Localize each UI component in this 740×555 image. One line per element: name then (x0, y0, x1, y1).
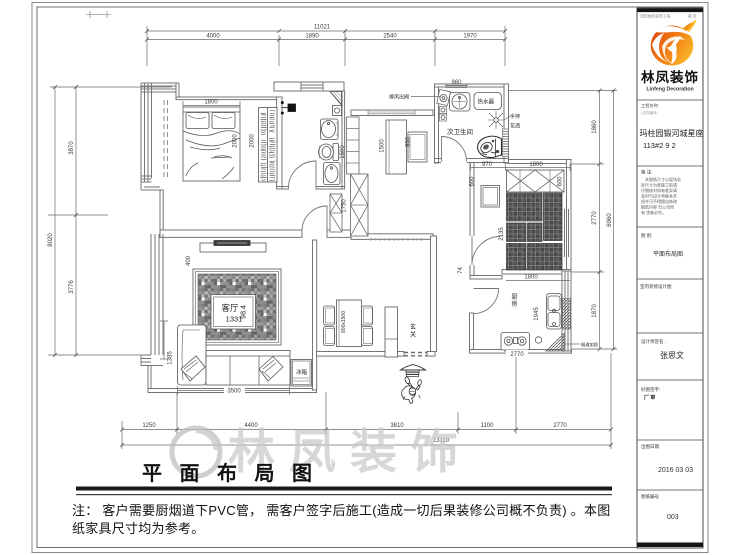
svg-text:客厅: 客厅 (221, 303, 239, 313)
svg-text:1800: 1800 (529, 162, 543, 168)
svg-text:1385: 1385 (168, 351, 174, 365)
svg-text:平面布局图: 平面布局图 (142, 461, 330, 485)
svg-text:烟道加固: 烟道加固 (581, 341, 598, 348)
svg-text:2770: 2770 (592, 211, 598, 225)
svg-text:注： 客户需要厨烟道下PVC管， 需客户签字后施工(造成一切: 注： 客户需要厨烟道下PVC管， 需客户签字后施工(造成一切后果装修公司概不负责… (72, 503, 610, 518)
svg-text:张思文: 张思文 (660, 350, 684, 360)
svg-text:本图纸尺寸以现场实: 本图纸尺寸以现场实 (645, 176, 681, 182)
svg-text:冰箱: 冰箱 (296, 368, 308, 376)
svg-text:3776: 3776 (69, 280, 75, 294)
svg-text:室内装修设计图: 室内装修设计图 (640, 283, 672, 290)
svg-text:400: 400 (186, 255, 192, 266)
svg-text:次卫生间: 次卫生间 (447, 127, 473, 136)
svg-text:出图日期: 出图日期 (641, 443, 659, 450)
svg-text:平面布局图: 平面布局图 (653, 250, 683, 258)
svg-text:2135: 2135 (499, 227, 505, 241)
svg-text:1860: 1860 (592, 120, 598, 134)
svg-text:图纸编号: 图纸编号 (641, 493, 659, 500)
svg-text:11021: 11021 (314, 25, 331, 31)
svg-text:玛柱园锻河城星座: 玛柱园锻河城星座 (640, 128, 704, 138)
svg-text:8020: 8020 (48, 233, 54, 247)
svg-text:2000: 2000 (233, 134, 239, 148)
svg-text:有 违者必究。: 有 违者必究。 (641, 209, 666, 215)
svg-text:800x1500: 800x1500 (341, 311, 347, 333)
svg-text:纸家具尺寸均为参考。: 纸家具尺寸均为参考。 (72, 521, 205, 536)
svg-text:1250: 1250 (142, 423, 156, 429)
svg-text:林凤装饰: 林凤装饰 (641, 69, 699, 85)
svg-text:113#2 9 2: 113#2 9 2 (643, 141, 676, 150)
svg-text:关: 关 (410, 331, 416, 339)
svg-text:Linfeng Decoration: Linfeng Decoration (646, 87, 693, 93)
svg-text:1800: 1800 (524, 275, 538, 281)
svg-text:1800: 1800 (204, 100, 218, 106)
svg-text:6960: 6960 (607, 213, 613, 227)
svg-text:2770: 2770 (510, 352, 524, 358)
svg-text:设计师签名 :: 设计师签名 : (641, 338, 666, 345)
svg-text:600: 600 (558, 176, 564, 187)
svg-text:4000: 4000 (206, 34, 220, 40)
svg-text:手持: 手持 (510, 113, 520, 120)
svg-text:花洒: 花洒 (510, 123, 520, 130)
svg-text:厨: 厨 (511, 294, 517, 301)
svg-text:1750: 1750 (342, 199, 348, 213)
svg-text:3500: 3500 (227, 389, 241, 395)
svg-text:图纸内容 归公司所: 图纸内容 归公司所 (641, 204, 674, 210)
svg-text:1500: 1500 (340, 145, 346, 159)
svg-text:热水器: 热水器 (478, 98, 495, 106)
svg-text:1945: 1945 (534, 307, 540, 321)
svg-text:第 页: 第 页 (688, 14, 697, 19)
svg-text:仔细核对如有差异请: 仔细核对如有差异请 (641, 187, 677, 193)
svg-text:图 别:: 图 别: (641, 232, 653, 239)
svg-text:际尺寸为准施工前请: 际尺寸为准施工前请 (641, 182, 677, 188)
svg-text:1870: 1870 (592, 304, 598, 318)
svg-text:工程名称:: 工程名称: (641, 102, 659, 109)
svg-text:沈阳林凤装饰工程: 沈阳林凤装饰工程 (640, 14, 671, 19)
svg-text:1500: 1500 (380, 139, 386, 153)
svg-text:98.4: 98.4 (241, 305, 248, 319)
svg-text:及时与设计师联系未: 及时与设计师联系未 (641, 193, 677, 199)
svg-text:74: 74 (458, 267, 464, 274)
svg-text:970: 970 (482, 162, 493, 168)
svg-text:1970: 1970 (463, 34, 477, 40)
svg-text:600: 600 (470, 176, 476, 187)
svg-text:厂 审: 厂 审 (644, 394, 655, 401)
svg-text:850: 850 (406, 136, 412, 147)
svg-text:860: 860 (451, 80, 462, 86)
svg-text:2770: 2770 (553, 423, 567, 429)
svg-text:排风出阀: 排风出阀 (389, 94, 409, 101)
svg-text:003: 003 (667, 514, 679, 521)
svg-text:玄: 玄 (410, 323, 416, 331)
svg-text:1100: 1100 (481, 423, 495, 429)
svg-text:房: 房 (511, 300, 517, 308)
svg-text:备 注:: 备 注: (641, 169, 653, 176)
svg-text:2016 03 03: 2016 03 03 (658, 467, 693, 474)
svg-text:2540: 2540 (383, 34, 397, 40)
svg-text:3870: 3870 (69, 141, 75, 155)
svg-text:1890: 1890 (305, 34, 319, 40)
svg-text:2000: 2000 (250, 134, 256, 148)
svg-text:经许可不得擅自修改: 经许可不得擅自修改 (641, 198, 677, 204)
svg-text:好图签字:: 好图签字: (641, 386, 660, 393)
svg-text:(合同编号): (合同编号) (641, 110, 658, 115)
